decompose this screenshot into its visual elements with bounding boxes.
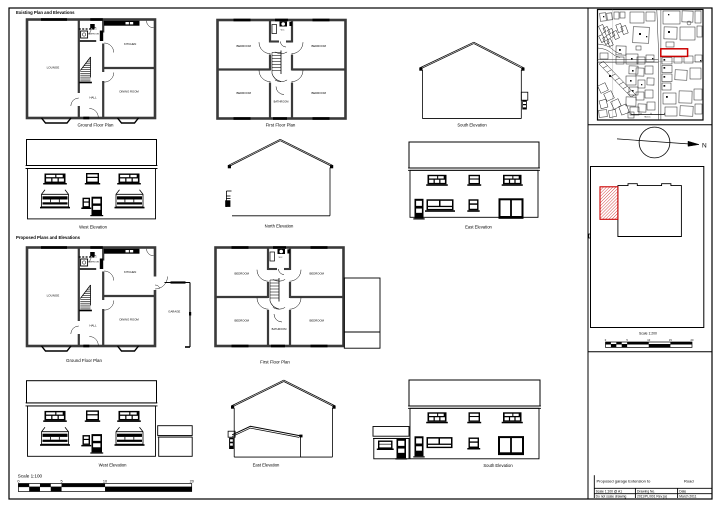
- svg-text:West Elevation: West Elevation: [99, 463, 128, 468]
- svg-text:BATHROOM: BATHROOM: [274, 100, 289, 104]
- svg-text:East Elevation: East Elevation: [465, 224, 492, 229]
- svg-text:5: 5: [60, 480, 62, 484]
- svg-text:DINING ROOM: DINING ROOM: [119, 318, 139, 322]
- svg-text:KITCHEN: KITCHEN: [124, 270, 136, 274]
- svg-text:BEDROOM: BEDROOM: [310, 319, 325, 323]
- svg-text:GARAGE: GARAGE: [168, 310, 180, 314]
- svg-text:W.C: W.C: [279, 257, 283, 259]
- svg-text:BATHROOM: BATHROOM: [272, 327, 287, 331]
- svg-text:BEDROOM: BEDROOM: [235, 319, 250, 323]
- svg-text:BATHROOM: BATHROOM: [88, 33, 99, 36]
- svg-text:BATHROOM: BATHROOM: [88, 261, 99, 264]
- svg-text:HALL: HALL: [90, 96, 97, 100]
- svg-text:Date: Date: [679, 490, 686, 494]
- svg-text:HALL: HALL: [90, 324, 97, 328]
- svg-text:West Elevation: West Elevation: [79, 224, 108, 229]
- svg-text:BEDROOM: BEDROOM: [312, 91, 327, 95]
- svg-text:BEDROOM: BEDROOM: [237, 44, 252, 48]
- svg-text:Scale 1:100: Scale 1:100: [18, 474, 43, 479]
- svg-text:Proposed garage Extension to: Proposed garage Extension to: [597, 478, 652, 483]
- svg-text:First Floor Plan: First Floor Plan: [260, 360, 290, 365]
- svg-text:Drawing No.: Drawing No.: [637, 490, 655, 494]
- svg-text:South Elevation: South Elevation: [483, 463, 513, 468]
- svg-text:2011/PL/001 Rev.(a): 2011/PL/001 Rev.(a): [637, 495, 667, 499]
- svg-text:DINING ROOM: DINING ROOM: [119, 90, 139, 94]
- svg-text:LOUNGE: LOUNGE: [47, 294, 60, 298]
- svg-text:East Elevation: East Elevation: [253, 463, 280, 468]
- svg-text:Proposed Plans and Elevations: Proposed Plans and Elevations: [16, 235, 81, 240]
- svg-text:March 2011: March 2011: [679, 495, 696, 499]
- svg-text:Do not scale drawing: Do not scale drawing: [596, 495, 627, 499]
- svg-text:W.C: W.C: [281, 30, 285, 32]
- svg-text:Scale 1:100 @ A1: Scale 1:100 @ A1: [596, 490, 623, 494]
- svg-text:N: N: [702, 143, 707, 150]
- svg-text:Ground Floor Plan: Ground Floor Plan: [78, 122, 114, 127]
- svg-text:0: 0: [17, 480, 19, 484]
- svg-text:BEDROOM: BEDROOM: [237, 91, 252, 95]
- svg-text:North Elevation: North Elevation: [265, 224, 294, 229]
- svg-text:Ground Floor Plan: Ground Floor Plan: [66, 358, 102, 363]
- svg-text:20: 20: [190, 480, 194, 484]
- svg-text:Road: Road: [684, 478, 694, 483]
- svg-text:Existing Plan and Elevations: Existing Plan and Elevations: [16, 10, 75, 15]
- svg-text:KITCHEN: KITCHEN: [124, 42, 136, 46]
- svg-text:LOUNGE: LOUNGE: [47, 66, 60, 70]
- svg-text:First Floor Plan: First Floor Plan: [266, 122, 296, 127]
- svg-text:South Elevation: South Elevation: [457, 122, 487, 127]
- svg-text:10: 10: [103, 480, 107, 484]
- svg-text:Scale 1:200: Scale 1:200: [639, 331, 657, 335]
- svg-text:BEDROOM: BEDROOM: [312, 44, 327, 48]
- svg-text:Metres: Metres: [644, 115, 650, 118]
- svg-text:BEDROOM: BEDROOM: [235, 272, 250, 276]
- svg-text:BEDROOM: BEDROOM: [310, 272, 325, 276]
